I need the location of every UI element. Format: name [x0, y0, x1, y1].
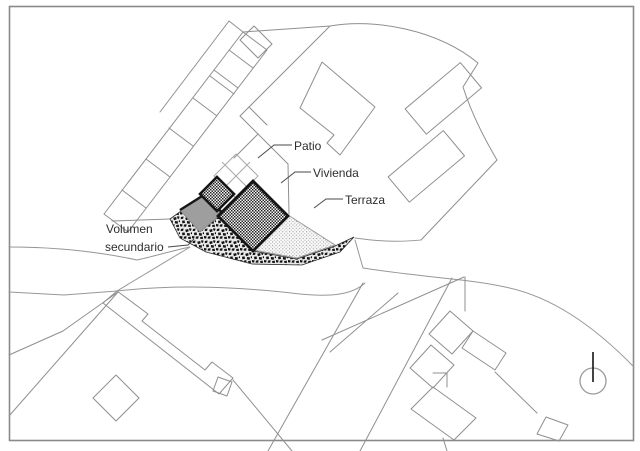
site-plan-page: Patio Vivienda Terraza Volumen secundari…: [0, 0, 640, 451]
label-volumen-line1: Volumen: [106, 222, 153, 236]
label-terraza: Terraza: [345, 193, 385, 207]
paper: [0, 0, 640, 451]
label-volumen-line2: secundario: [105, 240, 164, 254]
label-patio: Patio: [294, 139, 322, 153]
label-vivienda: Vivienda: [313, 166, 359, 180]
site-plan: Patio Vivienda Terraza Volumen secundari…: [0, 0, 640, 451]
